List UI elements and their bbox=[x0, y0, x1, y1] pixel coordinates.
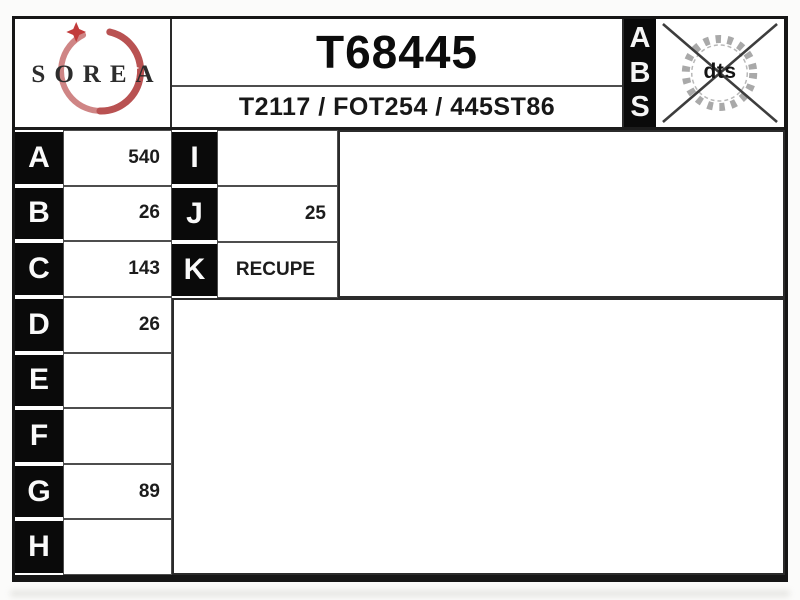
no-dts-indicator: dts bbox=[656, 19, 784, 127]
drawing-panel-right bbox=[338, 130, 785, 298]
row-value bbox=[217, 130, 338, 186]
row-value: 540 bbox=[63, 130, 172, 186]
table-row: D 26 bbox=[15, 297, 172, 353]
row-value: 26 bbox=[63, 186, 172, 242]
row-label: D bbox=[15, 299, 63, 351]
gear-label: dts bbox=[656, 60, 784, 84]
abs-letter: B bbox=[630, 59, 651, 88]
row-label: A bbox=[15, 132, 63, 184]
table-row: K RECUPE bbox=[172, 242, 338, 298]
row-value bbox=[63, 408, 172, 464]
dimension-table-left: A 540 B 26 C 143 D 26 E F G 89 H bbox=[15, 130, 172, 575]
row-label: G bbox=[15, 466, 63, 518]
title-box: T68445 T2117 / FOT254 / 445ST86 bbox=[172, 19, 624, 127]
abs-letter: S bbox=[630, 93, 649, 122]
row-value bbox=[63, 353, 172, 409]
table-row: F bbox=[15, 408, 172, 464]
table-row: A 540 bbox=[15, 130, 172, 186]
star-icon bbox=[66, 22, 86, 42]
abs-letter: A bbox=[630, 24, 651, 53]
table-row: G 89 bbox=[15, 464, 172, 520]
spec-sheet: SOREA T68445 T2117 / FOT254 / 445ST86 A … bbox=[12, 16, 788, 582]
row-label: K bbox=[172, 244, 217, 296]
table-row: H bbox=[15, 519, 172, 575]
drawing-panel-bottom bbox=[172, 298, 785, 575]
row-value: 89 bbox=[63, 464, 172, 520]
row-label: C bbox=[15, 243, 63, 295]
row-value: RECUPE bbox=[217, 242, 338, 298]
row-label: E bbox=[15, 355, 63, 407]
table-row: J 25 bbox=[172, 186, 338, 242]
row-label: J bbox=[172, 188, 217, 240]
row-label: H bbox=[15, 521, 63, 573]
row-value: 25 bbox=[217, 186, 338, 242]
row-label: F bbox=[15, 410, 63, 462]
cross-references: T2117 / FOT254 / 445ST86 bbox=[172, 85, 622, 127]
table-row: C 143 bbox=[15, 241, 172, 297]
row-label: I bbox=[172, 132, 217, 184]
abs-indicator: A B S bbox=[624, 19, 656, 127]
sheet-header: SOREA T68445 T2117 / FOT254 / 445ST86 A … bbox=[15, 19, 784, 130]
row-value: 26 bbox=[63, 297, 172, 353]
brand-logo: SOREA bbox=[15, 19, 172, 127]
part-number: T68445 bbox=[172, 19, 622, 85]
brand-name: SOREA bbox=[15, 61, 170, 89]
dimension-table-ijk: I J 25 K RECUPE bbox=[172, 130, 338, 298]
table-row: B 26 bbox=[15, 186, 172, 242]
scan-artifact bbox=[10, 590, 790, 597]
table-row: E bbox=[15, 353, 172, 409]
row-value bbox=[63, 519, 172, 575]
row-value: 143 bbox=[63, 241, 172, 297]
table-row: I bbox=[172, 130, 338, 186]
row-label: B bbox=[15, 188, 63, 240]
